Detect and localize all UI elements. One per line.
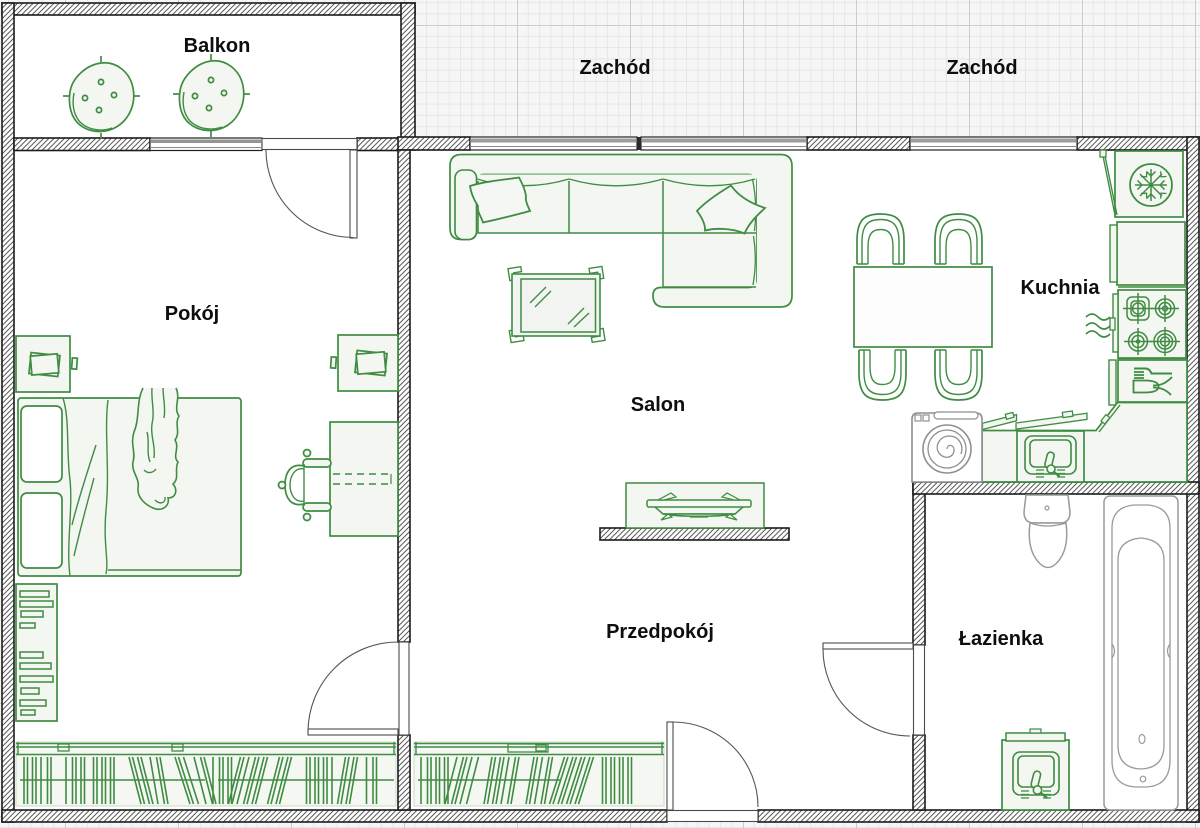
svg-text:Kuchnia: Kuchnia	[1021, 277, 1101, 299]
svg-text:Zachód: Zachód	[946, 57, 1017, 79]
svg-text:Pokój: Pokój	[165, 303, 219, 325]
svg-text:Salon: Salon	[631, 394, 685, 416]
svg-text:Balkon: Balkon	[184, 35, 251, 57]
svg-text:Przedpokój: Przedpokój	[606, 621, 714, 643]
svg-text:Zachód: Zachód	[579, 57, 650, 79]
svg-text:Łazienka: Łazienka	[959, 628, 1044, 650]
